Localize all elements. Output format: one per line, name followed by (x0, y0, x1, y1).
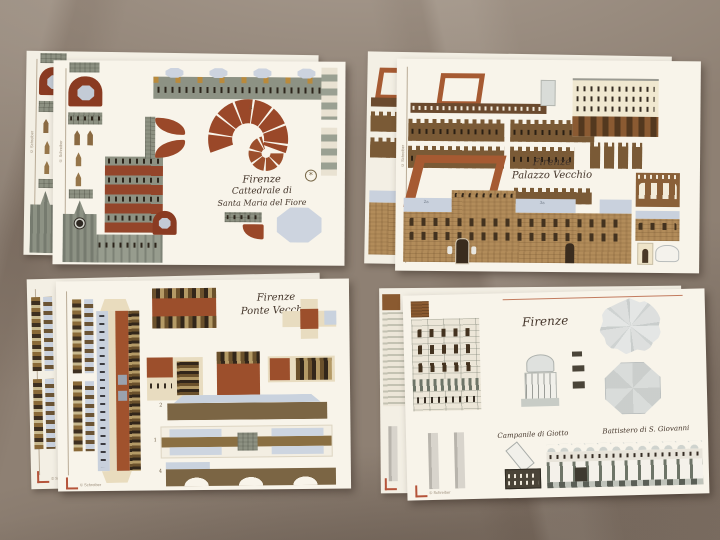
arcade-band (413, 378, 481, 392)
arch-band (166, 468, 336, 487)
margin-rule (66, 291, 69, 475)
edge-mark-text: © Schreiber (58, 140, 63, 163)
bridge-shop-strip (128, 311, 141, 471)
shop-row (217, 351, 260, 363)
frieze-strip-piece (69, 62, 99, 72)
title-line: Palazzo Vecchio (500, 169, 604, 183)
campanile-facade-piece (382, 312, 405, 406)
belfry-arches (639, 183, 677, 199)
campanile-top-square (382, 294, 400, 310)
statue-marker (447, 246, 452, 254)
tab (324, 311, 336, 325)
doorway (565, 243, 574, 263)
small-part (573, 381, 585, 388)
corner-mark (385, 478, 397, 490)
window-row (108, 178, 160, 183)
part-number: 1 (154, 437, 157, 443)
bridge-house-piece (152, 288, 216, 329)
shop-texture (296, 358, 332, 380)
small-part (572, 365, 584, 371)
shop-front-strip (33, 379, 44, 449)
lantern-body-piece (524, 372, 557, 401)
spire-piece (74, 172, 83, 186)
roof-patch (118, 375, 127, 385)
roof-octagon-piece (604, 361, 661, 414)
edge-mark-text: © Schreiber (29, 131, 34, 154)
window-row (409, 218, 625, 228)
statue-marker (471, 246, 476, 254)
main-wall-piece: 2a 3a (403, 190, 632, 264)
shop-front-strip (45, 379, 56, 449)
window-row (70, 116, 100, 120)
roof-patch (270, 358, 290, 380)
arch-piece-center (77, 85, 94, 100)
shop-front-strip (73, 381, 83, 451)
door-panel-piece (637, 243, 653, 265)
rear-building-piece (572, 78, 659, 137)
dot-row (508, 480, 538, 485)
statue-piece (541, 80, 556, 106)
title-line: Firenze (500, 156, 604, 170)
belfry-piece (636, 173, 680, 207)
window-row (577, 86, 655, 92)
corner-strip-piece (454, 432, 465, 488)
shop-front-strip (43, 297, 54, 371)
part-number: 4 (159, 468, 162, 474)
window-row (409, 232, 625, 242)
window-row (638, 223, 676, 230)
cap-strip-piece (69, 189, 93, 198)
roadway-center-stone (238, 432, 258, 450)
bridge-roadway-piece (160, 425, 332, 459)
campanile-facade-piece (411, 318, 481, 412)
tower-roof-center (300, 309, 318, 329)
arcade-row (572, 116, 658, 137)
buttress-strip-piece (321, 68, 337, 120)
window-row (418, 362, 474, 372)
sheet-ponte: © Schreiber Firenze Ponte Vecchio (56, 278, 351, 491)
wall-body (403, 212, 631, 264)
dome-spiral-piece (188, 97, 320, 182)
sheet-palazzo: © Schreiber (395, 59, 701, 274)
campanile-top-square (411, 301, 429, 317)
arcade-strip-small (225, 212, 262, 222)
dome-base-octagon-piece (277, 207, 322, 242)
part-number: 3 (249, 105, 252, 111)
tab-label: 2a (424, 199, 429, 204)
chest-piece (505, 468, 541, 489)
sheet-title: Firenze Palazzo Vecchio (500, 156, 604, 183)
title-line: Santa Maria del Fiore (199, 197, 325, 209)
sheet-cattedrale: © Schreiber (52, 60, 345, 266)
grey-tab-band (600, 199, 632, 213)
dot-row (508, 473, 538, 478)
shop-texture (177, 361, 199, 395)
dome-gore-piece (155, 118, 185, 135)
roadway-panel (170, 447, 222, 456)
shop-front-strip (31, 297, 42, 371)
roof-patch (147, 357, 173, 377)
shop-strip-piece (410, 103, 546, 114)
tower-strip-piece (618, 143, 628, 169)
tower-strip-piece (632, 143, 642, 169)
bridge-cap-tab (102, 471, 132, 483)
part-number: 2 (159, 402, 162, 408)
window-row (227, 215, 260, 219)
battistero-caption: Battistero di S. Giovanni (584, 423, 708, 437)
roof-square-piece (217, 351, 260, 396)
dot-row (150, 383, 172, 388)
lantern-base-piece (521, 398, 559, 407)
arch-band (167, 402, 327, 421)
pinnacle-piece (41, 119, 50, 133)
doorway (575, 467, 587, 481)
crenellated-strip-piece (408, 119, 504, 142)
spire-piece (43, 161, 51, 174)
leaf-strip-piece (145, 117, 155, 159)
wall-raised-section (452, 190, 516, 215)
corner-mark (66, 477, 78, 489)
sheet-title: Firenze (495, 312, 596, 332)
arch-piece (68, 76, 102, 106)
window-row (577, 96, 655, 102)
tower-strip-piece (604, 142, 614, 168)
doorway (455, 238, 469, 264)
fountain-piece (655, 245, 679, 262)
facade-piece (62, 200, 96, 262)
wall-body (635, 219, 679, 241)
header-rule (503, 295, 683, 300)
window-row (108, 159, 160, 164)
small-part (572, 351, 582, 356)
window-row (549, 452, 699, 460)
window-row (576, 106, 654, 112)
corner-strip-piece (428, 433, 439, 489)
edge-mark-text: © Schreiber (429, 490, 450, 496)
spire-piece (74, 152, 83, 166)
roadway-panel (272, 446, 324, 455)
window-row (99, 242, 161, 247)
window-row (417, 328, 473, 337)
window-row (108, 197, 160, 202)
tab-label: 3a (540, 200, 545, 205)
dome-gore-piece (155, 140, 185, 158)
edge-mark-text: © Schreiber (80, 482, 101, 487)
window-row (418, 344, 474, 354)
dot-row (412, 106, 544, 111)
shop-front-strip (84, 299, 94, 373)
door (642, 249, 648, 263)
roof-gore-rosette-piece (599, 297, 662, 354)
lantern-dome-piece (526, 354, 554, 373)
house-piece (147, 357, 203, 401)
rose-window (74, 217, 86, 229)
pinnacle-piece (85, 130, 95, 145)
arcade-strip-piece (68, 112, 102, 124)
shop-front-strip (85, 381, 95, 451)
spire-piece (43, 141, 51, 154)
sheet-firenze: © Schreiber Campanile di Giotto Firenze … (403, 288, 710, 500)
corner-mark (37, 471, 49, 483)
wall-segment-piece (635, 211, 679, 241)
crenellation-row (638, 175, 678, 179)
bridge-arch-strip (166, 461, 336, 487)
shop-row (152, 288, 216, 299)
house-piece-small (268, 356, 335, 383)
pinnacle-piece (72, 130, 82, 145)
arch-piece-center (159, 218, 171, 229)
roadway-panel (169, 429, 221, 438)
arch-piece-small (153, 211, 177, 235)
grey-tab-band (516, 199, 576, 214)
crenellation-dots (455, 193, 513, 198)
battistero-wall-piece (546, 440, 703, 488)
photo-scene: © Schreiber © Schreiber (0, 0, 720, 540)
corner-mark (415, 485, 427, 497)
side-wall-strip-piece (96, 234, 162, 262)
window-dots (99, 315, 106, 467)
roof-frame-piece (436, 73, 485, 106)
corner-strip-piece (388, 426, 397, 481)
bridge-cap-tab (100, 299, 130, 311)
dot-row (411, 129, 501, 135)
window-row (157, 87, 327, 94)
dome-wedge-piece (243, 224, 264, 239)
campanile-caption: Campanile di Giotto (478, 428, 588, 442)
shop-front-strip (72, 299, 82, 373)
bridge-arch-strip (167, 394, 327, 421)
shop-row (152, 316, 216, 329)
edge-mark-text: © Schreiber (400, 145, 405, 168)
roof-patch (118, 391, 127, 401)
roadway-panel (271, 428, 323, 437)
lantern-rosette-icon: * (305, 170, 317, 182)
base-row (417, 396, 477, 403)
buttress-strip-piece (321, 128, 337, 176)
